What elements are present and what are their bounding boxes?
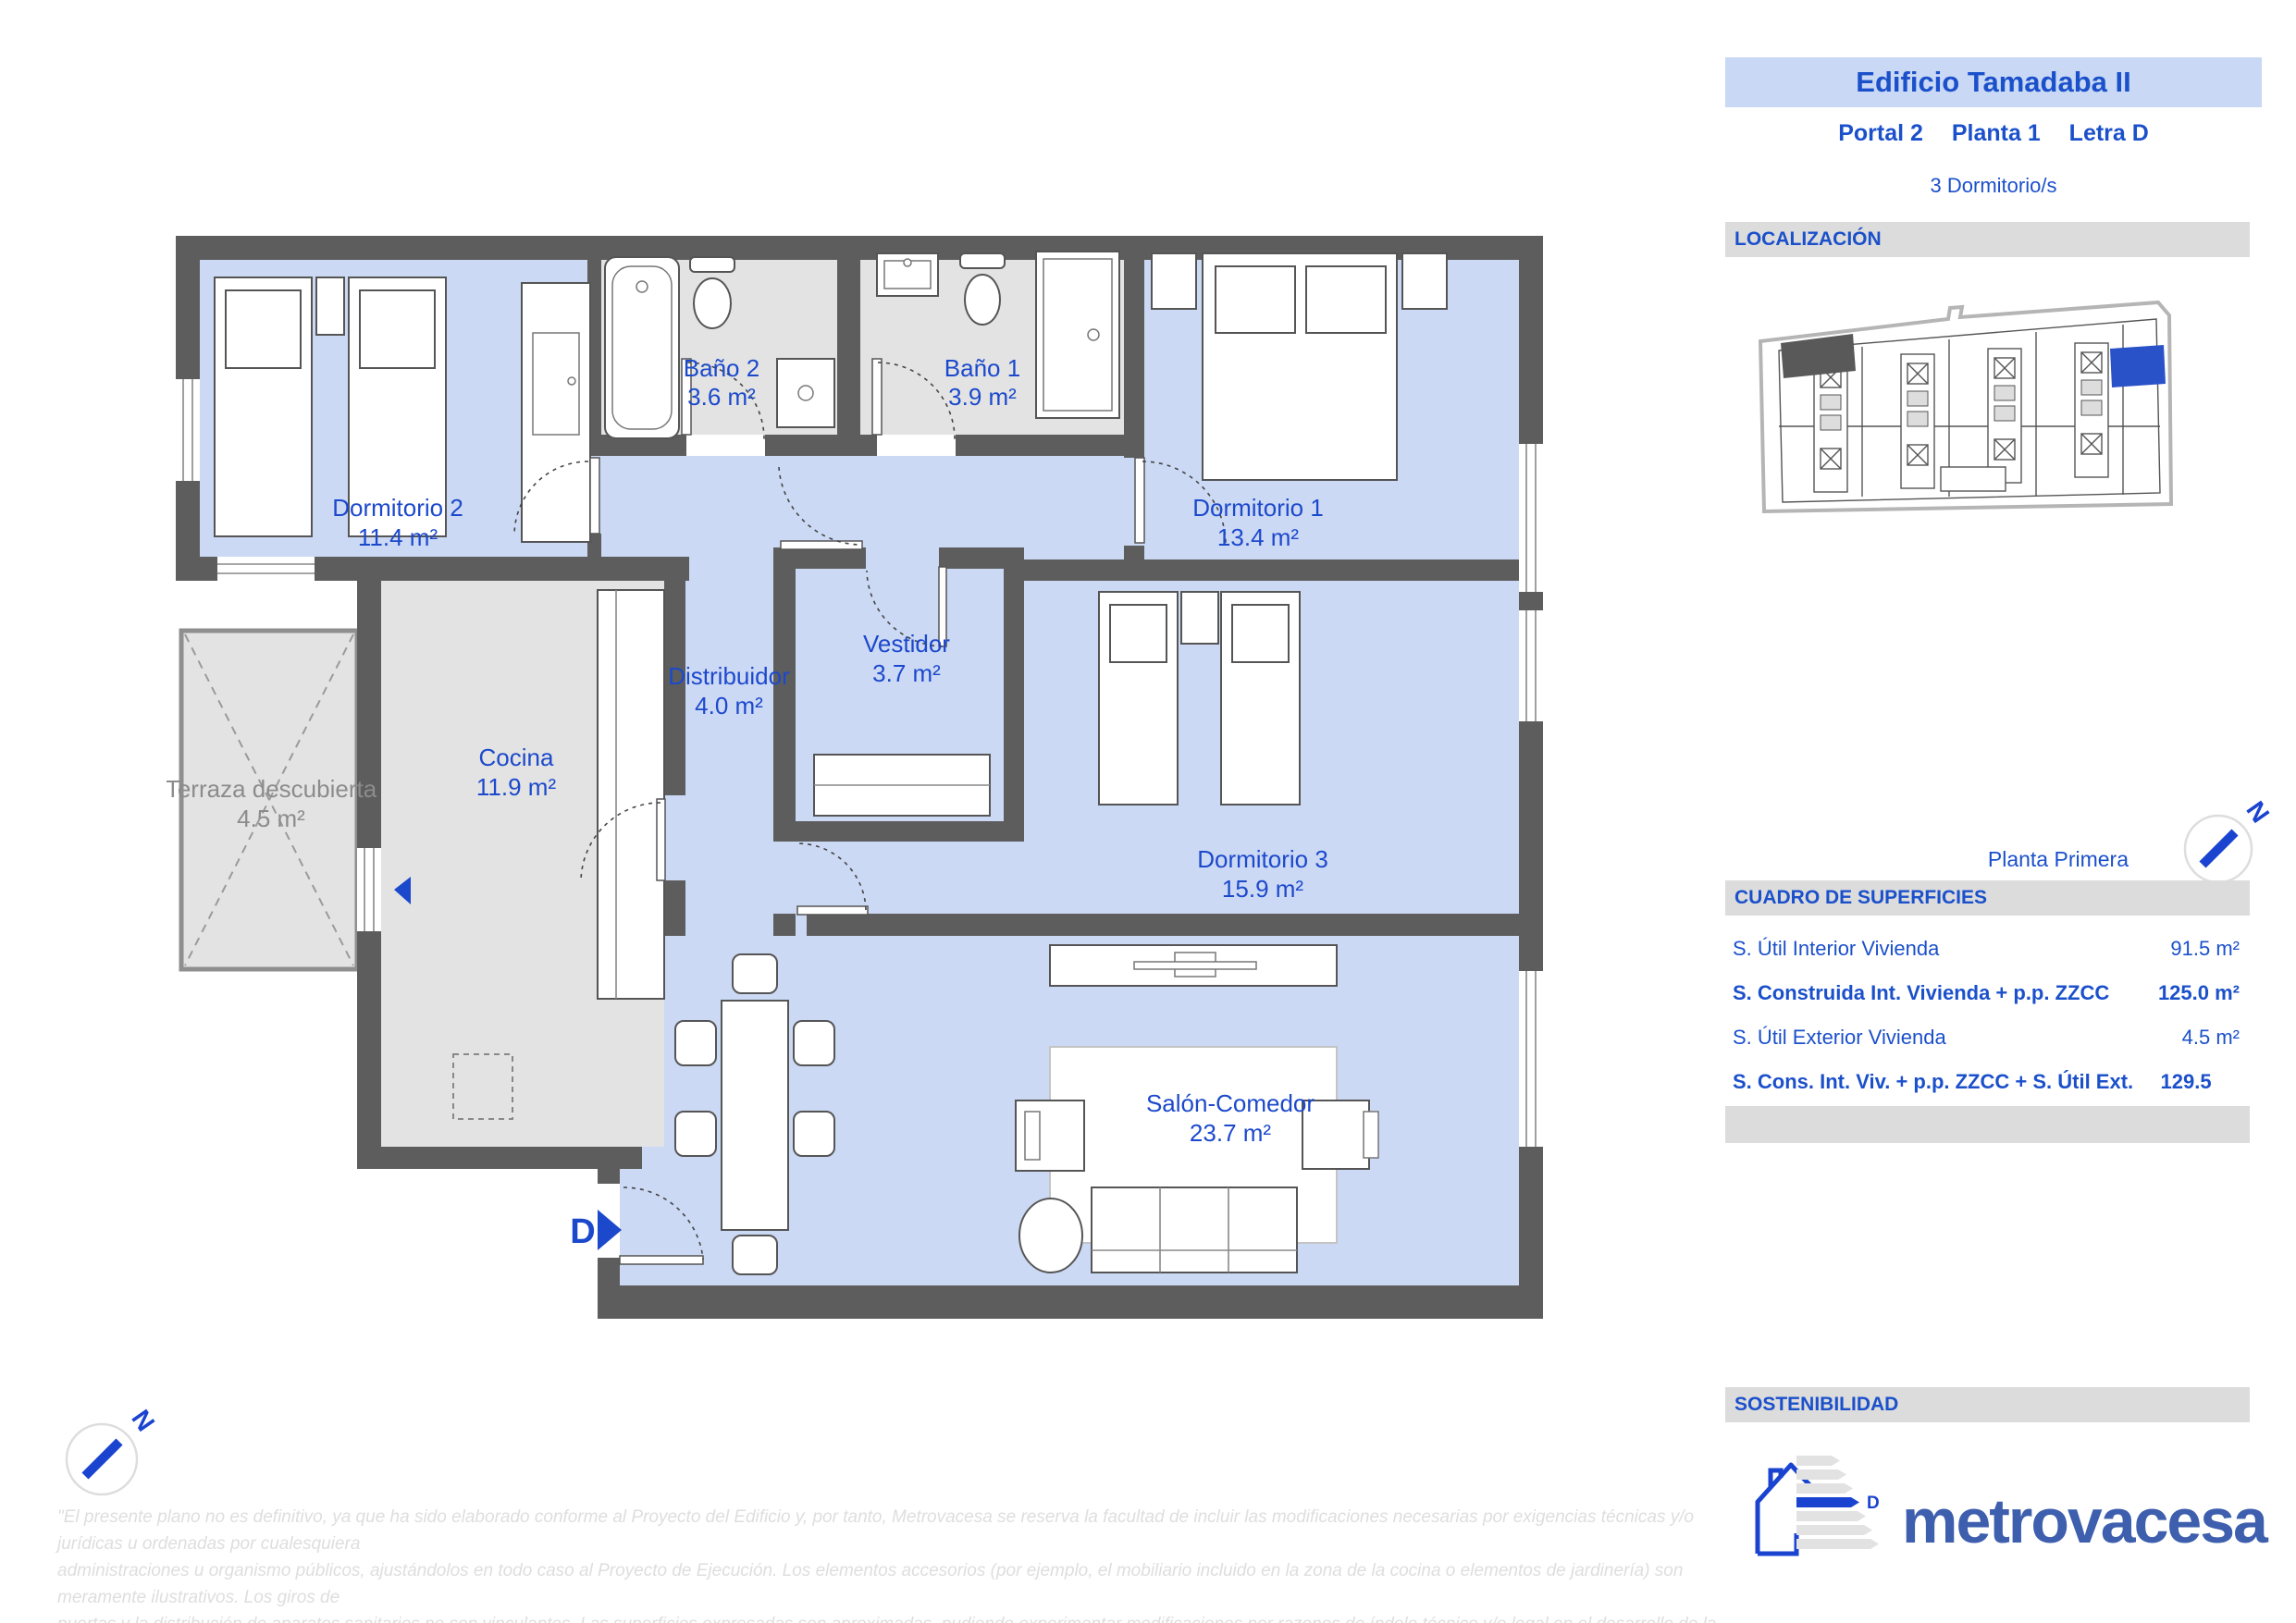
energy-rating-letter: D xyxy=(1867,1494,1880,1513)
terraza-door xyxy=(357,848,381,931)
surface-value: 125.0 m² xyxy=(2158,971,2240,1015)
svg-text:Baño 2: Baño 2 xyxy=(684,354,759,382)
tv-sideboard xyxy=(1050,945,1337,986)
opening-bano2 xyxy=(686,435,765,456)
sofa xyxy=(1092,1187,1297,1273)
portal-label: Portal 2 xyxy=(1838,120,1923,146)
svg-text:4.0 m²: 4.0 m² xyxy=(695,692,763,719)
surfaces-header: CUADRO DE SUPERFICIES xyxy=(1725,880,2250,916)
window-dorm3 xyxy=(1519,610,1543,721)
shower-icon xyxy=(1036,252,1119,418)
metrovacesa-logo: metrovacesa xyxy=(1902,1485,2266,1557)
window-dorm2-left xyxy=(176,379,200,481)
window-dorm1 xyxy=(1519,444,1543,592)
unit-identifier: Portal 2 Planta 1 Letra D xyxy=(1725,120,2262,147)
disclaimer-line: "El presente plano no es definitivo, ya … xyxy=(57,1504,1722,1557)
disclaimer-line: puertas y la distribución de aparatos sa… xyxy=(57,1611,1722,1623)
table-row: S. Construida Int. Vivienda + p.p. ZZCC … xyxy=(1725,971,2243,1015)
compass-icon: N xyxy=(48,1395,168,1510)
table-row: S. Cons. Int. Viv. + p.p. ZZCC + S. Útil… xyxy=(1725,1060,2243,1104)
divider-bar xyxy=(1725,1106,2250,1143)
room-label-bano-1: Baño 1 3.9 m² xyxy=(944,354,1020,411)
minimap-hall xyxy=(1941,467,2006,491)
svg-text:Terraza descubierta: Terraza descubierta xyxy=(167,775,377,803)
sostenibilidad-header: SOSTENIBILIDAD xyxy=(1725,1387,2250,1422)
bedrooms-count: 3 Dormitorio/s xyxy=(1725,174,2262,198)
svg-text:Dormitorio 3: Dormitorio 3 xyxy=(1197,845,1328,873)
table-row: S. Útil Interior Vivienda 91.5 m² xyxy=(1725,927,2243,971)
floor-plan: D Dormitorio 2 11.4 m² Baño 2 3.6 m² Bañ… xyxy=(167,222,1573,1332)
window-salon xyxy=(1519,971,1543,1147)
energy-bars: D xyxy=(1796,1456,1880,1549)
surface-label: S. Útil Exterior Vivienda xyxy=(1733,1015,1946,1060)
legal-disclaimer: "El presente plano no es definitivo, ya … xyxy=(57,1504,1722,1623)
sink2-icon xyxy=(777,359,834,427)
opening-bano1 xyxy=(877,435,956,456)
bathtub-icon xyxy=(605,257,679,438)
window-dorm2-terraza xyxy=(217,557,315,581)
svg-text:3.7 m²: 3.7 m² xyxy=(872,659,941,687)
entrance-letter: D xyxy=(570,1212,595,1251)
energy-house-base xyxy=(1758,1533,1796,1554)
dorm2-wardrobe xyxy=(522,283,590,542)
disclaimer-line: administraciones u organismo públicos, a… xyxy=(57,1557,1722,1611)
armchair-left xyxy=(1016,1100,1084,1171)
side-table xyxy=(1019,1199,1082,1273)
svg-text:Dormitorio 1: Dormitorio 1 xyxy=(1192,494,1324,522)
surface-label: S. Útil Interior Vivienda xyxy=(1733,927,1939,971)
page-title: Edificio Tamadaba II xyxy=(1725,57,2262,107)
minimap-highlighted-unit xyxy=(2110,345,2166,387)
sink1-icon xyxy=(877,253,938,296)
svg-text:11.4 m²: 11.4 m² xyxy=(358,523,438,551)
surface-label: S. Construida Int. Vivienda + p.p. ZZCC xyxy=(1733,971,2109,1015)
svg-text:13.4 m²: 13.4 m² xyxy=(1217,523,1299,551)
location-minimap xyxy=(1751,282,2186,555)
surface-label: S. Cons. Int. Viv. + p.p. ZZCC + S. Útil… xyxy=(1733,1060,2161,1104)
compass-north-label: N xyxy=(2240,796,2275,828)
localizacion-header: LOCALIZACIÓN xyxy=(1725,222,2250,257)
toilet2-icon xyxy=(690,257,734,328)
svg-text:Salón-Comedor: Salón-Comedor xyxy=(1146,1089,1315,1117)
surfaces-table: S. Útil Interior Vivienda 91.5 m² S. Con… xyxy=(1725,927,2243,1104)
surface-value: 4.5 m² xyxy=(2182,1015,2240,1060)
svg-text:3.9 m²: 3.9 m² xyxy=(948,383,1017,411)
svg-text:15.9 m²: 15.9 m² xyxy=(1222,875,1303,903)
svg-text:Baño 1: Baño 1 xyxy=(944,354,1020,382)
vestidor-wardrobe xyxy=(814,755,990,816)
table-row: S. Útil Exterior Vivienda 4.5 m² xyxy=(1725,1015,2243,1060)
room-label-bano-2: Baño 2 3.6 m² xyxy=(684,354,759,411)
svg-text:Dormitorio 2: Dormitorio 2 xyxy=(332,494,463,522)
svg-text:Cocina: Cocina xyxy=(479,744,554,771)
svg-text:11.9 m²: 11.9 m² xyxy=(476,773,557,801)
surface-value: 129.5 m² xyxy=(2161,1060,2240,1104)
surface-value: 91.5 m² xyxy=(2170,927,2240,971)
svg-text:Distribuidor: Distribuidor xyxy=(668,662,790,690)
planta-label: Planta 1 xyxy=(1952,120,2041,146)
compass-north-label: N xyxy=(126,1405,160,1436)
svg-text:Vestidor: Vestidor xyxy=(863,630,950,658)
svg-text:3.6 m²: 3.6 m² xyxy=(687,383,756,411)
plan-sheet: D Dormitorio 2 11.4 m² Baño 2 3.6 m² Bañ… xyxy=(0,0,2296,1623)
floor-name: Planta Primera xyxy=(1725,847,2129,872)
svg-text:4.5 m²: 4.5 m² xyxy=(237,805,305,832)
letra-label: Letra D xyxy=(2069,120,2149,146)
svg-text:23.7 m²: 23.7 m² xyxy=(1190,1119,1271,1147)
